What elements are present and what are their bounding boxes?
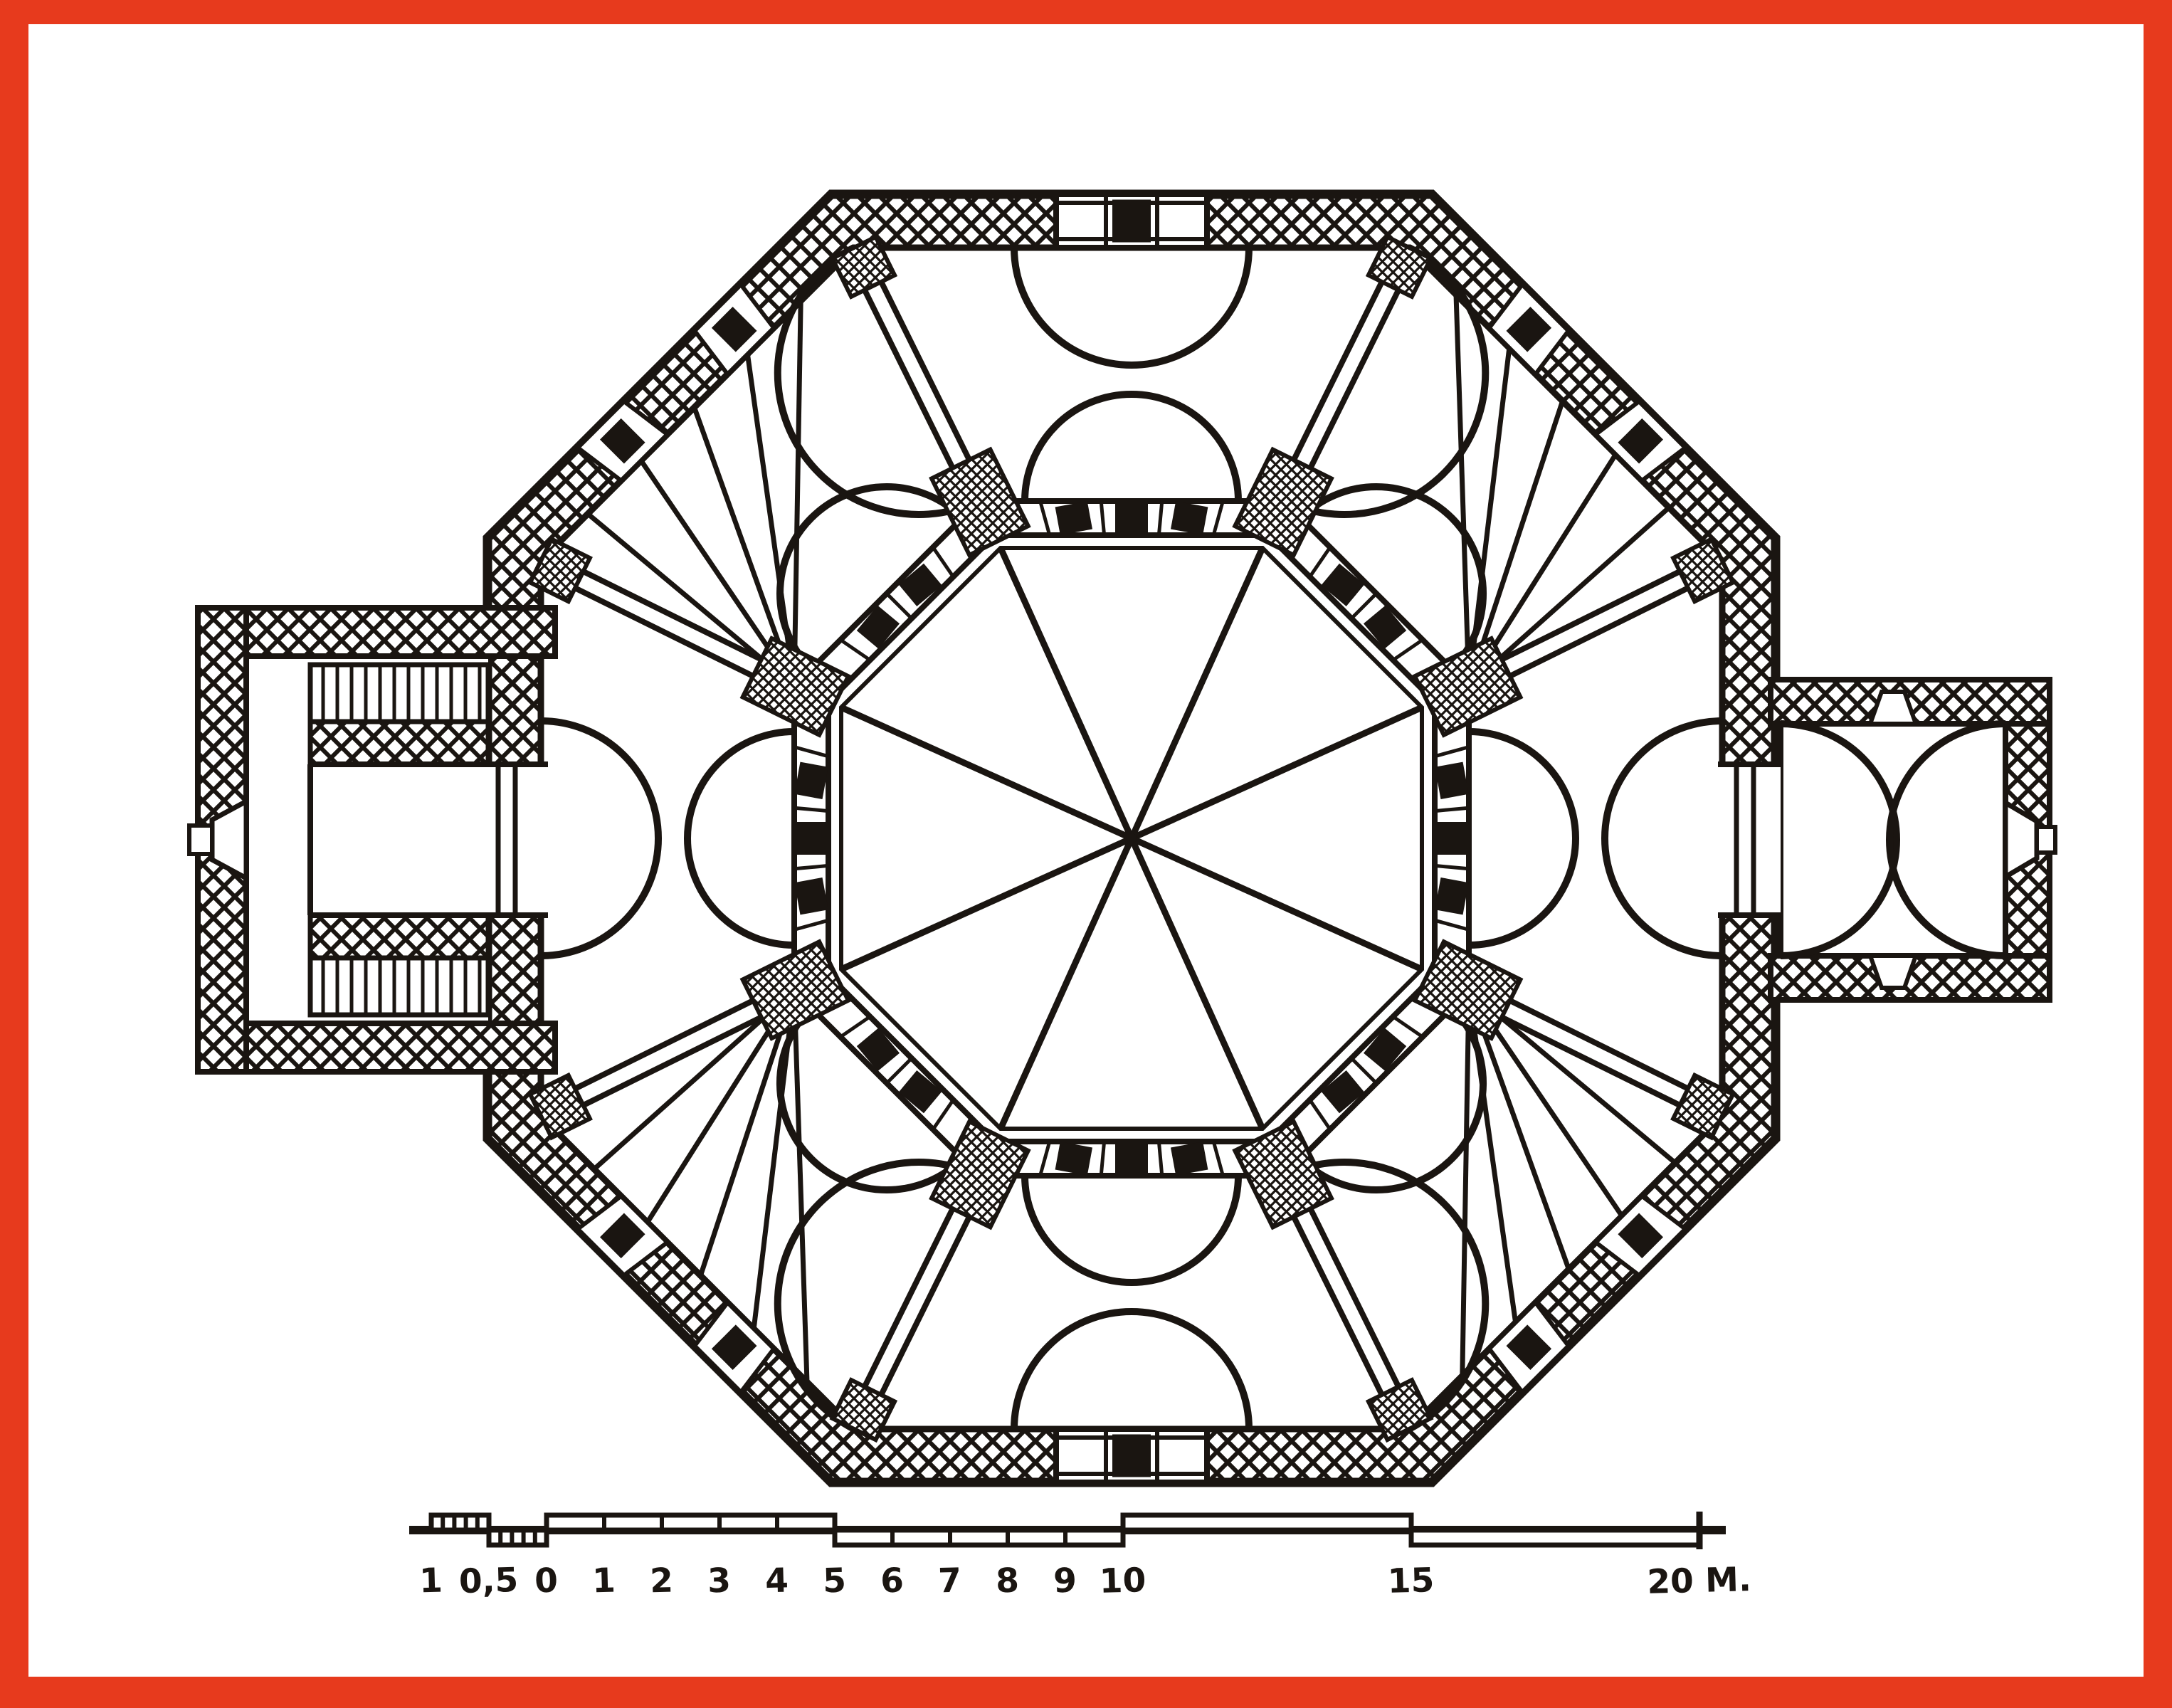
scale-tick-label: 15 xyxy=(1387,1561,1435,1601)
scale-tick-label: 2 xyxy=(650,1561,674,1601)
scale-tick-label: 3 xyxy=(707,1561,732,1601)
scale-tick-label: 10 xyxy=(1099,1561,1146,1601)
scale-tick-label: 1 xyxy=(419,1561,443,1601)
scale-tick-label: 5 xyxy=(823,1561,847,1601)
scale-tick-label: 9 xyxy=(1053,1561,1077,1601)
scale-tick-label: 8 xyxy=(996,1561,1020,1601)
floor-plan-drawing: 10,50123456789101520 M. xyxy=(0,0,2172,1708)
scale-tick-label: 7 xyxy=(938,1561,962,1601)
scale-tick-label: 20 M. xyxy=(1647,1560,1752,1602)
plate-frame: 10,50123456789101520 M. xyxy=(0,0,2172,1708)
scale-tick-label: 1 xyxy=(592,1561,616,1601)
scale-tick-label: 0 xyxy=(534,1561,559,1601)
scale-tick-label: 6 xyxy=(880,1561,905,1601)
scale-tick-label: 0,5 xyxy=(458,1561,519,1601)
scale-tick-label: 4 xyxy=(765,1561,789,1601)
